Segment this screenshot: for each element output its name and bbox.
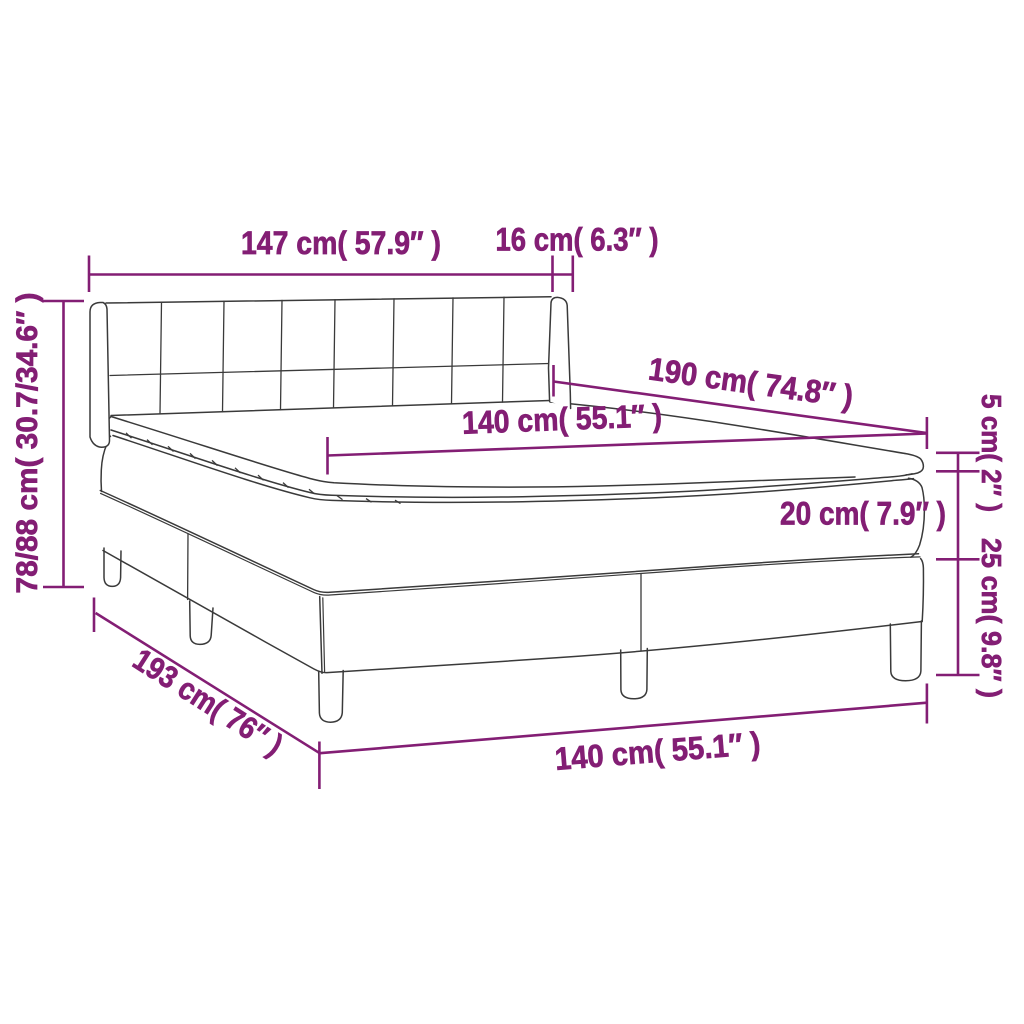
svg-text:78/88 cm( 30.7/34.6″ ): 78/88 cm( 30.7/34.6″ ): [11, 293, 44, 594]
svg-text:5 cm( 2″ ): 5 cm( 2″ ): [976, 394, 1007, 512]
svg-text:16 cm( 6.3″ ): 16 cm( 6.3″ ): [496, 222, 659, 258]
svg-text:140 cm( 55.1″ ): 140 cm( 55.1″ ): [461, 397, 662, 441]
svg-text:140 cm( 55.1″ ): 140 cm( 55.1″ ): [553, 725, 761, 777]
svg-text:25 cm( 9.8″ ): 25 cm( 9.8″ ): [976, 538, 1007, 698]
svg-text:193 cm( 76″ ): 193 cm( 76″ ): [127, 642, 289, 763]
svg-text:147 cm( 57.9″ ): 147 cm( 57.9″ ): [241, 225, 441, 261]
svg-text:20 cm( 7.9″ ): 20 cm( 7.9″ ): [780, 496, 946, 532]
svg-text:190 cm( 74.8″ ): 190 cm( 74.8″ ): [646, 351, 855, 415]
